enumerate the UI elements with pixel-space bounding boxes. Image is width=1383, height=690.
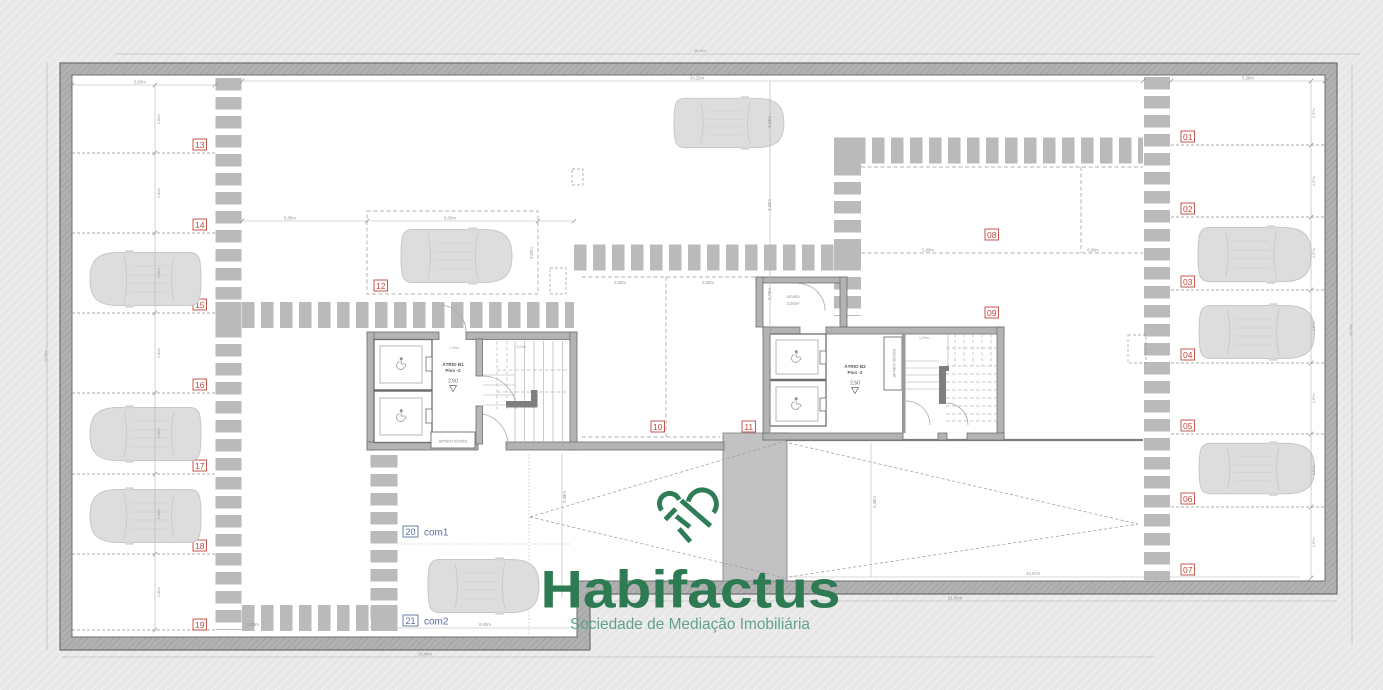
- svg-text:16: 16: [195, 380, 205, 390]
- svg-text:armário técnico: armário técnico: [439, 439, 468, 444]
- svg-text:2,57m: 2,57m: [1312, 176, 1316, 186]
- svg-text:5,38m: 5,38m: [562, 491, 567, 503]
- svg-text:2,57m: 2,57m: [1312, 248, 1316, 258]
- svg-text:2,20m: 2,20m: [767, 199, 772, 211]
- svg-text:18,10m: 18,10m: [1349, 324, 1353, 336]
- svg-text:07: 07: [1183, 565, 1193, 575]
- svg-text:2,86m: 2,86m: [157, 428, 161, 438]
- svg-text:3,00m²: 3,00m²: [786, 301, 800, 306]
- svg-text:3,24m: 3,24m: [516, 345, 526, 349]
- svg-text:3,00m: 3,00m: [529, 247, 534, 259]
- svg-text:2,57m: 2,57m: [1312, 537, 1316, 547]
- svg-text:1,20m: 1,20m: [449, 346, 459, 350]
- svg-text:14: 14: [195, 220, 205, 230]
- svg-text:2,57m: 2,57m: [1312, 465, 1316, 475]
- svg-text:2,60: 2,60: [448, 379, 458, 385]
- svg-text:5,80m: 5,80m: [922, 248, 934, 253]
- svg-text:01: 01: [1183, 132, 1193, 142]
- svg-text:2,86m: 2,86m: [157, 188, 161, 198]
- svg-text:2,86m: 2,86m: [157, 587, 161, 597]
- svg-text:21,00m: 21,00m: [948, 596, 962, 601]
- svg-text:2,86m: 2,86m: [157, 268, 161, 278]
- svg-text:5,30m: 5,30m: [247, 622, 259, 627]
- svg-text:3,36m: 3,36m: [702, 280, 714, 285]
- svg-text:ÁTRIO B2: ÁTRIO B2: [844, 363, 866, 369]
- svg-text:20: 20: [405, 527, 415, 537]
- svg-text:09: 09: [987, 308, 997, 318]
- svg-text:03: 03: [1183, 277, 1193, 287]
- svg-text:com1: com1: [424, 528, 449, 539]
- svg-text:10: 10: [653, 422, 663, 432]
- svg-text:06: 06: [1183, 494, 1193, 504]
- svg-text:34,22m: 34,22m: [690, 76, 704, 81]
- svg-text:19,40m: 19,40m: [418, 652, 432, 657]
- svg-text:2,86m: 2,86m: [157, 114, 161, 124]
- svg-text:6,00m: 6,00m: [1087, 248, 1099, 253]
- svg-text:17: 17: [195, 461, 205, 471]
- svg-text:2,57m: 2,57m: [1312, 393, 1316, 403]
- svg-text:21: 21: [405, 616, 415, 626]
- svg-text:5,83m: 5,83m: [134, 80, 146, 85]
- svg-text:Piso -2: Piso -2: [445, 368, 461, 373]
- svg-text:Piso -2: Piso -2: [847, 370, 863, 375]
- svg-text:2,50: 2,50: [850, 381, 860, 387]
- svg-text:10,07m: 10,07m: [1026, 571, 1040, 576]
- svg-text:12: 12: [376, 281, 386, 291]
- svg-text:ÁTRIO B1: ÁTRIO B1: [442, 361, 464, 367]
- svg-text:5,38m: 5,38m: [1242, 76, 1254, 81]
- svg-text:com2: com2: [424, 617, 449, 628]
- svg-text:02: 02: [1183, 204, 1193, 214]
- svg-text:3,60m: 3,60m: [767, 116, 772, 128]
- svg-text:Sociedade de Mediação Imobiliá: Sociedade de Mediação Imobiliária: [570, 616, 810, 633]
- svg-text:1,23m: 1,23m: [919, 336, 929, 340]
- svg-text:48,40m: 48,40m: [694, 49, 706, 53]
- svg-text:armário técnico: armário técnico: [892, 348, 897, 377]
- svg-text:6,00m: 6,00m: [444, 216, 456, 221]
- svg-text:5,85m: 5,85m: [284, 216, 296, 221]
- svg-text:3,36m: 3,36m: [614, 280, 626, 285]
- svg-text:19: 19: [195, 620, 205, 630]
- svg-text:05: 05: [1183, 421, 1193, 431]
- svg-text:20,80m: 20,80m: [44, 350, 48, 362]
- svg-text:11: 11: [744, 422, 753, 432]
- svg-text:08: 08: [987, 230, 997, 240]
- svg-text:04: 04: [1183, 350, 1193, 360]
- svg-text:arrumo: arrumo: [786, 294, 800, 299]
- svg-text:5,38m: 5,38m: [872, 496, 877, 508]
- svg-text:2,57m: 2,57m: [1312, 108, 1316, 118]
- svg-text:18: 18: [195, 541, 205, 551]
- svg-text:2,73m: 2,73m: [767, 288, 772, 300]
- svg-text:2,86m: 2,86m: [157, 348, 161, 358]
- svg-text:13: 13: [195, 140, 205, 150]
- svg-text:2,86m: 2,86m: [157, 509, 161, 519]
- svg-text:Habifactus: Habifactus: [541, 561, 841, 620]
- svg-text:2,57m: 2,57m: [1312, 321, 1316, 331]
- svg-text:8,00m: 8,00m: [479, 622, 491, 627]
